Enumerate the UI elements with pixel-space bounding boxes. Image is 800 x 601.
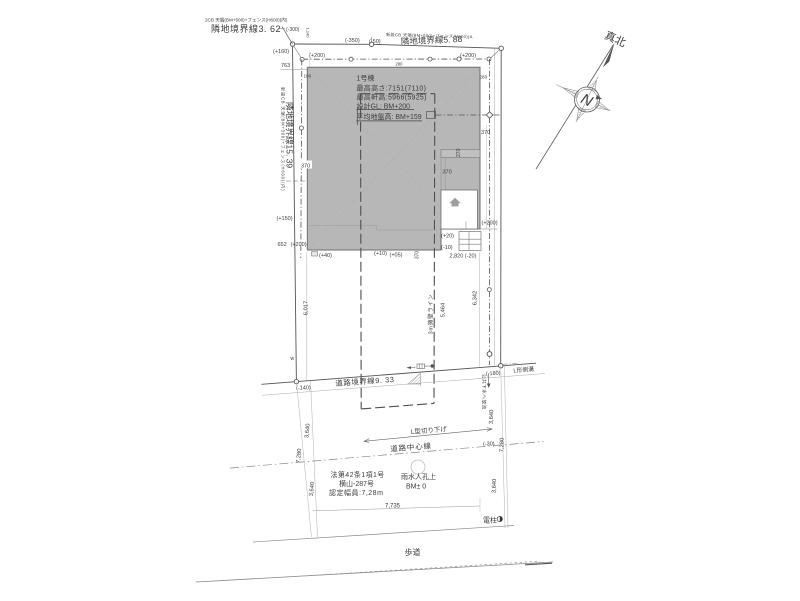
svg-text:(-350): (-350) xyxy=(345,38,360,44)
svg-text:(-300): (-300) xyxy=(286,27,300,33)
svg-text:370: 370 xyxy=(414,251,420,260)
svg-text:(-50): (-50) xyxy=(369,39,381,45)
svg-text:190: 190 xyxy=(304,74,312,79)
svg-text:(+150): (+150) xyxy=(277,216,293,222)
svg-text:(+160): (+160) xyxy=(273,49,289,55)
svg-text:(+200): (+200) xyxy=(291,242,307,248)
svg-text:法第42条1項1号: 法第42条1項1号 xyxy=(331,470,385,479)
svg-text:電柱: 電柱 xyxy=(483,516,497,525)
svg-text:2CB 天端(BM+500)+フェンス(H600)(内): 2CB 天端(BM+500)+フェンス(H600)(内) xyxy=(205,17,288,24)
svg-text:6,342: 6,342 xyxy=(473,291,479,306)
svg-text:370: 370 xyxy=(443,170,452,176)
svg-text:1,140: 1,140 xyxy=(306,28,311,39)
svg-text:6,017: 6,017 xyxy=(304,301,310,316)
svg-text:(-30): (-30) xyxy=(483,442,495,448)
svg-text:280: 280 xyxy=(480,75,488,80)
svg-text:(-140): (-140) xyxy=(296,386,311,392)
svg-text:7,735: 7,735 xyxy=(385,504,401,510)
svg-text:横山-287号: 横山-287号 xyxy=(339,479,374,488)
svg-text:5,464: 5,464 xyxy=(441,302,447,317)
svg-text:652: 652 xyxy=(278,242,287,248)
svg-text:雨水人孔上: 雨水人孔上 xyxy=(401,472,436,481)
svg-text:隣地境界線15. 39: 隣地境界線15. 39 xyxy=(285,102,295,168)
svg-text:BM± 0: BM± 0 xyxy=(406,484,426,491)
svg-text:平均地盤高: BM+159: 平均地盤高: BM+159 xyxy=(357,112,422,121)
svg-text:設計GL: BM+200: 設計GL: BM+200 xyxy=(357,101,411,110)
svg-text:763: 763 xyxy=(281,63,290,69)
svg-text:370: 370 xyxy=(481,130,490,136)
svg-text:公共下水へ放流: 公共下水へ放流 xyxy=(481,374,488,410)
svg-text:(+10): (+10) xyxy=(374,251,387,257)
svg-text:(+200): (+200) xyxy=(309,53,325,59)
svg-text:1号棟: 1号棟 xyxy=(357,73,375,82)
svg-text:認定幅員:7,28m: 認定幅員:7,28m xyxy=(329,488,383,497)
svg-text:(+40): (+40) xyxy=(319,253,332,259)
svg-text:280: 280 xyxy=(396,62,404,67)
svg-text:270: 270 xyxy=(456,148,462,157)
svg-text:(+20): (+20) xyxy=(441,234,454,240)
svg-text:3,640: 3,640 xyxy=(489,410,496,425)
svg-text:3m擁壁ライン: 3m擁壁ライン xyxy=(427,294,435,335)
svg-text:(+200): (+200) xyxy=(482,221,498,227)
svg-text:歩道: 歩道 xyxy=(405,547,421,557)
svg-text:(-180): (-180) xyxy=(486,370,501,377)
svg-text:2,820 (-20): 2,820 (-20) xyxy=(450,254,477,260)
svg-text:(-10): (-10) xyxy=(441,245,453,251)
svg-text:3,640: 3,640 xyxy=(492,479,499,494)
svg-text:最高高さ:7151(7110): 最高高さ:7151(7110) xyxy=(357,83,427,92)
svg-text:(+200): (+200) xyxy=(460,53,476,59)
svg-text:370: 370 xyxy=(301,163,310,169)
svg-text:w: w xyxy=(291,356,295,362)
svg-text:(+05): (+05) xyxy=(390,253,403,259)
svg-text:隣地境界線3. 62: 隣地境界線3. 62 xyxy=(211,23,281,34)
